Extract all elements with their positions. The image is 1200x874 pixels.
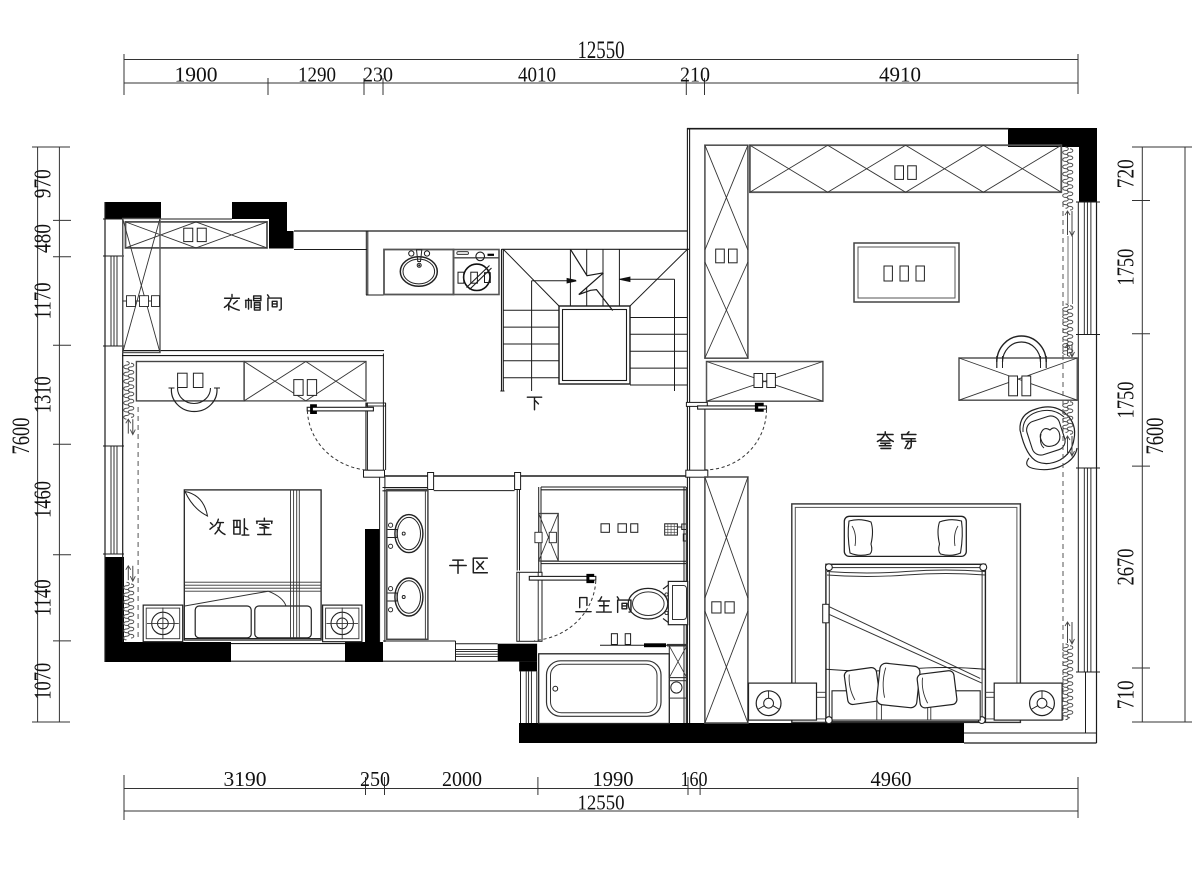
svg-text:1900: 1900 (175, 63, 218, 87)
svg-text:4010: 4010 (518, 63, 556, 87)
svg-text:1070: 1070 (31, 663, 57, 700)
svg-text:4910: 4910 (879, 63, 921, 87)
svg-text:4960: 4960 (871, 767, 912, 791)
svg-text:1750: 1750 (1114, 249, 1140, 286)
svg-text:1460: 1460 (31, 481, 57, 518)
svg-text:480: 480 (31, 224, 57, 253)
svg-text:230: 230 (363, 63, 393, 87)
svg-text:12550: 12550 (578, 791, 625, 815)
svg-text:1140: 1140 (31, 579, 57, 616)
svg-text:12550: 12550 (578, 37, 625, 64)
svg-text:720: 720 (1114, 159, 1140, 188)
svg-text:1310: 1310 (31, 376, 57, 413)
svg-text:2670: 2670 (1114, 549, 1140, 586)
svg-text:160: 160 (681, 767, 708, 791)
svg-text:210: 210 (680, 63, 710, 87)
svg-text:710: 710 (1114, 680, 1140, 709)
svg-text:970: 970 (31, 169, 57, 198)
svg-text:3190: 3190 (224, 767, 267, 791)
svg-text:1170: 1170 (31, 282, 57, 319)
svg-text:1290: 1290 (298, 63, 336, 87)
svg-text:7600: 7600 (1142, 418, 1169, 455)
svg-text:1750: 1750 (1114, 382, 1140, 419)
svg-text:2000: 2000 (442, 767, 482, 791)
svg-text:7600: 7600 (8, 418, 35, 455)
svg-text:1990: 1990 (593, 767, 634, 791)
svg-text:250: 250 (360, 767, 390, 791)
